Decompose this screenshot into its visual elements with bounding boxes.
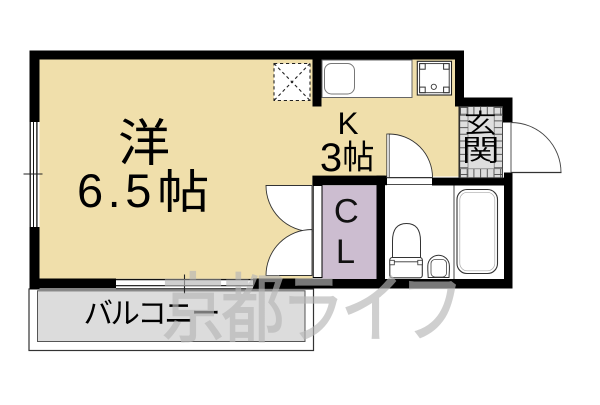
- svg-text:C: C: [334, 193, 359, 231]
- svg-text:6.5: 6.5: [77, 164, 156, 217]
- svg-text:L: L: [336, 233, 355, 271]
- svg-text:3: 3: [320, 136, 342, 180]
